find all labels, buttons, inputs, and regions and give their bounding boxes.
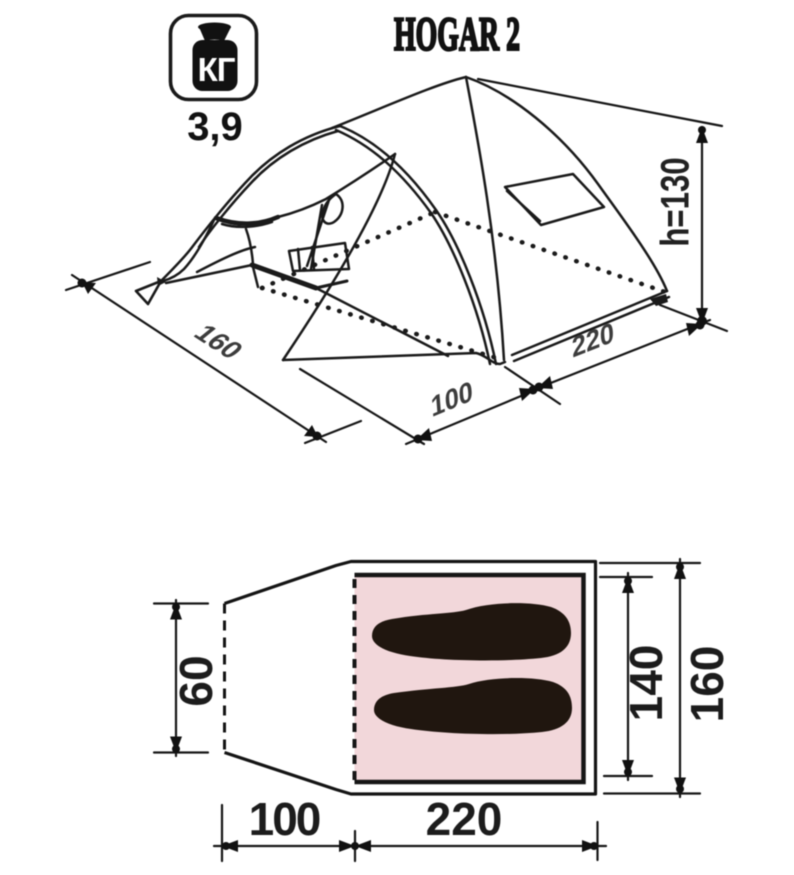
- svg-text:140: 140: [620, 645, 672, 722]
- svg-text:3,9: 3,9: [187, 105, 243, 149]
- svg-text:160: 160: [681, 646, 733, 723]
- svg-text:100: 100: [249, 793, 320, 845]
- svg-text:220: 220: [571, 316, 615, 364]
- svg-text:HOGAR 2: HOGAR 2: [394, 8, 520, 61]
- svg-text:100: 100: [430, 374, 474, 423]
- svg-text:КГ: КГ: [198, 51, 236, 88]
- svg-text:60: 60: [170, 655, 222, 706]
- svg-text:220: 220: [426, 793, 503, 845]
- svg-text:h=130: h=130: [653, 157, 698, 246]
